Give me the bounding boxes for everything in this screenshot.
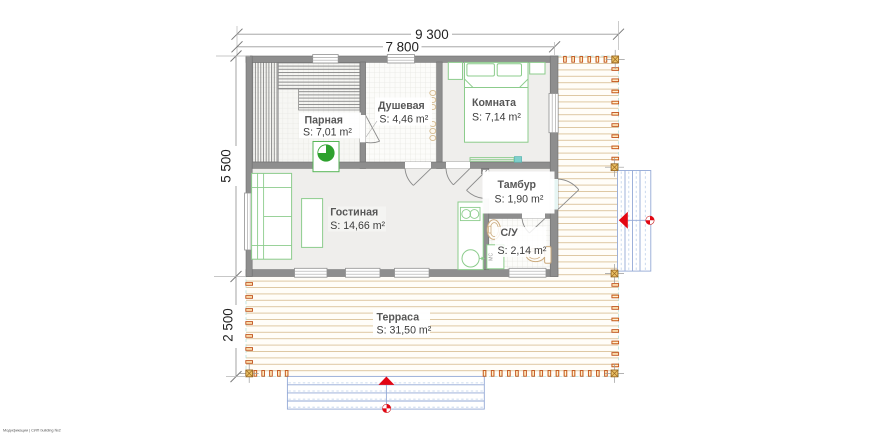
svg-text:Гостиная: Гостиная xyxy=(330,207,378,219)
svg-text:S: 14,66 m²: S: 14,66 m² xyxy=(330,220,385,232)
svg-text:S: 2,14 m²: S: 2,14 m² xyxy=(498,245,547,257)
svg-text:S: 1,90 m²: S: 1,90 m² xyxy=(495,193,544,205)
svg-text:Душевая: Душевая xyxy=(378,100,425,112)
svg-text:2 500: 2 500 xyxy=(221,308,236,342)
svg-text:МС: МС xyxy=(489,253,495,261)
svg-text:Терраса: Терраса xyxy=(377,312,420,324)
svg-text:5 500: 5 500 xyxy=(219,149,234,183)
svg-text:S: 4,46 m²: S: 4,46 m² xyxy=(379,113,428,125)
svg-text:Тамбур: Тамбур xyxy=(498,179,537,191)
svg-text:S: 7,01 m²: S: 7,01 m² xyxy=(303,126,352,138)
svg-text:S: 7,14 m²: S: 7,14 m² xyxy=(472,111,521,123)
svg-text:9 300: 9 300 xyxy=(415,27,449,42)
svg-text:7 800: 7 800 xyxy=(385,40,419,55)
svg-text:С/У: С/У xyxy=(501,227,519,239)
svg-text:S: 31,50 m²: S: 31,50 m² xyxy=(377,325,432,337)
svg-text:Комната: Комната xyxy=(472,97,516,109)
svg-text:Парная: Парная xyxy=(305,114,343,126)
svg-text:Модификации | СИП building №2: Модификации | СИП building №2 xyxy=(3,429,61,433)
